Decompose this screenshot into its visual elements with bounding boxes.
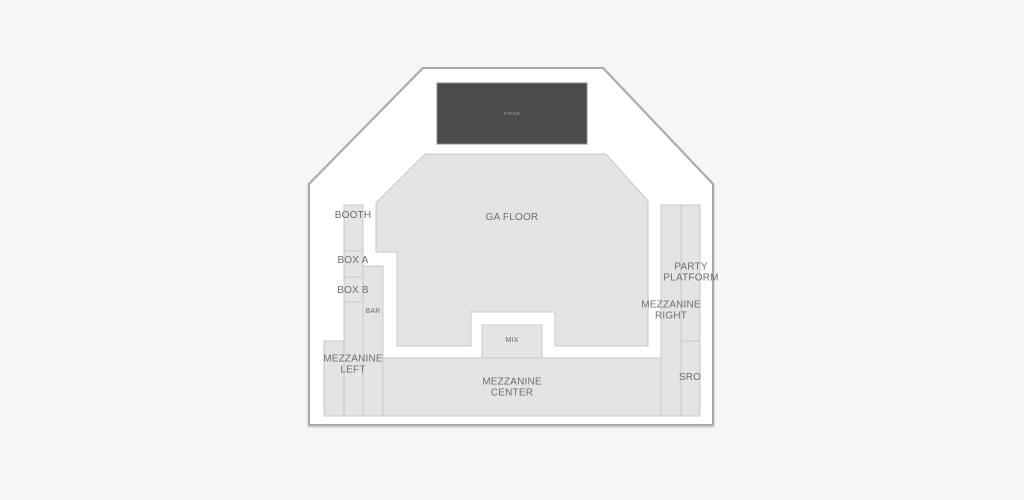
section-left-column-lower[interactable]	[344, 302, 363, 416]
section-sro[interactable]	[681, 341, 700, 416]
section-box-b[interactable]	[344, 277, 363, 302]
section-bar[interactable]	[363, 266, 383, 416]
section-booth[interactable]	[344, 205, 363, 251]
section-mix	[482, 325, 542, 358]
seating-chart-canvas	[0, 0, 1024, 500]
section-mezzanine-center[interactable]	[383, 358, 661, 416]
stage	[437, 83, 587, 144]
section-mezzanine-left[interactable]	[324, 341, 344, 416]
section-party-platform[interactable]	[681, 205, 700, 341]
seating-chart: STAGE GA FLOOR BOOTH BOX A BOX B BAR MIX…	[0, 0, 1024, 500]
section-mezzanine-right[interactable]	[661, 205, 681, 416]
section-box-a[interactable]	[344, 251, 363, 277]
